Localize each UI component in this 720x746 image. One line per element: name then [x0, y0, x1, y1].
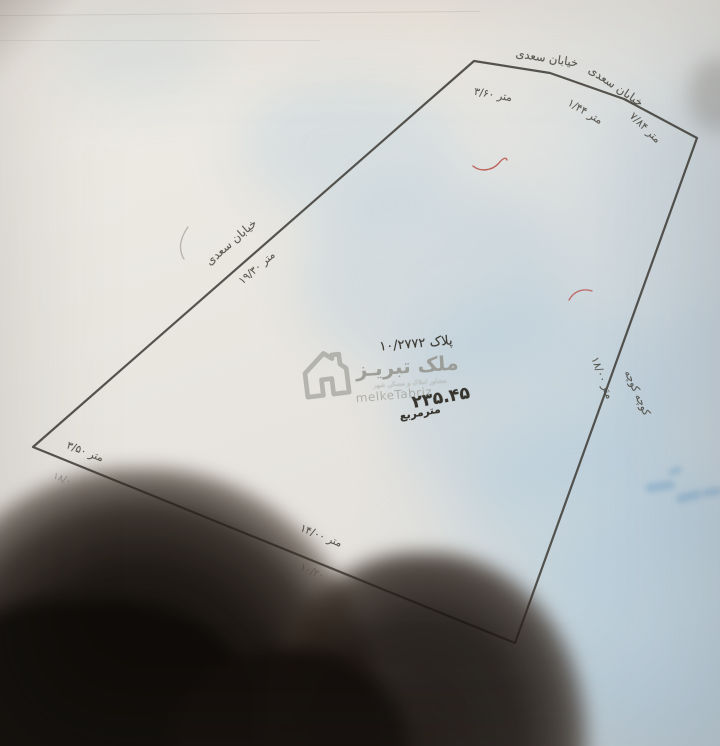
pencil-mark — [181, 227, 188, 259]
red-pen-mark — [473, 158, 507, 170]
red-pen-mark — [569, 290, 592, 300]
house-icon — [296, 345, 356, 403]
photographed-plot-sketch: خیابان سعدیخیابان سعدیمتر ۳/۶۰متر ۱/۴۴مت… — [0, 0, 720, 746]
plot-outline — [33, 61, 697, 643]
